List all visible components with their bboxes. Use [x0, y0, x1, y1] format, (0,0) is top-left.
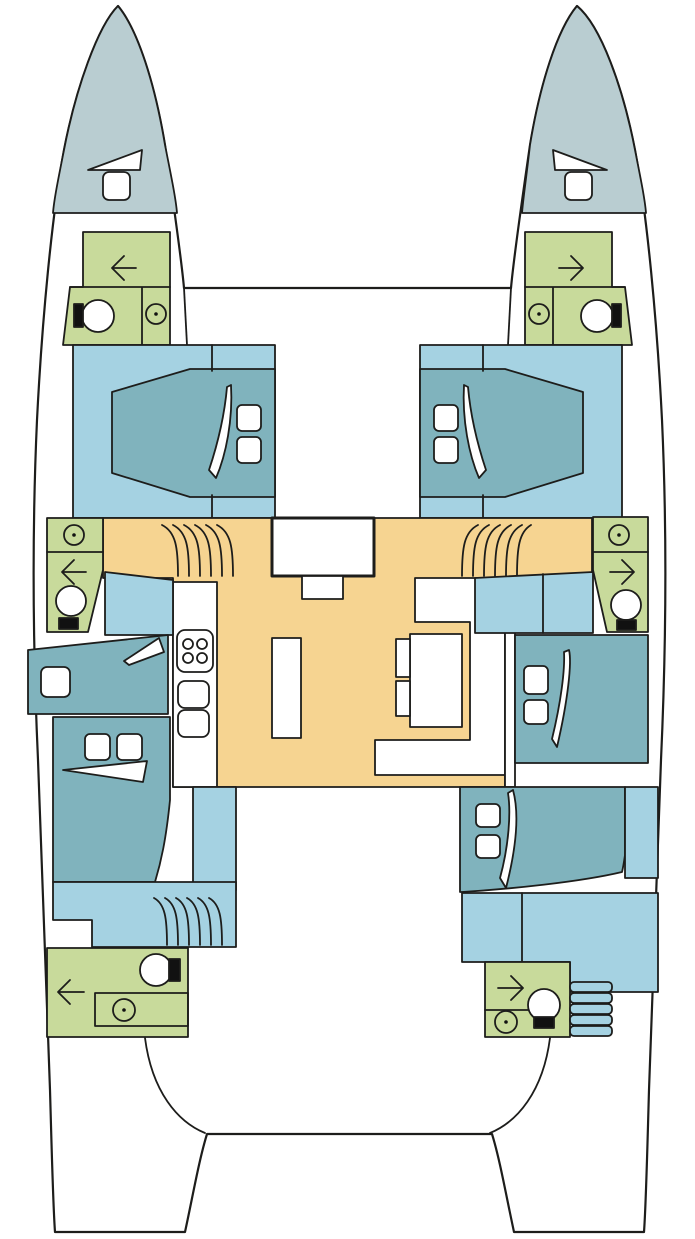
pillow-icon [434, 405, 458, 431]
steps-icon [570, 1026, 612, 1036]
toilet-icon [56, 586, 86, 616]
bed-icon [112, 369, 275, 497]
toilet-tank [169, 959, 180, 981]
deck-plan-canvas [0, 0, 695, 1239]
washbasin-drain [617, 533, 621, 537]
washbasin-drain [122, 1008, 126, 1012]
washbasin-drain [72, 533, 76, 537]
sink-icon [178, 710, 209, 737]
pillow-icon [524, 700, 548, 724]
landing-starboard [475, 572, 593, 633]
pillow-icon [476, 835, 500, 858]
pillow-icon [85, 734, 110, 760]
bed-icon [515, 635, 648, 763]
corridor-port [193, 787, 236, 890]
dinette-table [410, 634, 462, 727]
toilet-tank [74, 304, 83, 327]
washbasin-drain [537, 312, 541, 316]
pillow-icon [237, 405, 261, 431]
pillow-icon [237, 437, 261, 463]
bed-icon [420, 369, 583, 497]
stool [396, 681, 410, 716]
toilet-icon [140, 954, 172, 986]
toilet-icon [581, 300, 613, 332]
stove-icon [177, 630, 213, 672]
bow-lockers [53, 6, 646, 213]
washbasin-drain [504, 1020, 508, 1024]
pillow-icon [476, 804, 500, 827]
island-counter [272, 638, 301, 738]
deck-hatch-icon [565, 172, 592, 200]
pillow-icon [434, 437, 458, 463]
toilet-tank [617, 620, 636, 630]
deck-hatch-icon [103, 172, 130, 200]
toilet-tank [59, 618, 78, 629]
entry-step [302, 576, 343, 599]
toilet-icon [611, 590, 641, 620]
steps-icon [570, 1015, 612, 1025]
steps-icon [570, 982, 612, 992]
pillow-icon [524, 666, 548, 694]
side-passage-starboard [625, 787, 658, 878]
toilet-icon [82, 300, 114, 332]
pillow-icon [41, 667, 70, 697]
bed-icon [53, 717, 170, 882]
toilet-tank [612, 304, 621, 327]
catamaran-deck-plan [0, 0, 695, 1239]
steps-icon [570, 1004, 612, 1014]
toilet-tank [534, 1017, 554, 1028]
washbasin-drain [154, 312, 158, 316]
stool [396, 639, 410, 677]
steps-icon [570, 993, 612, 1003]
sink-icon [178, 681, 209, 708]
salon-entry-door [272, 518, 374, 576]
starboard-aft-steps [570, 982, 612, 1036]
pillow-icon [117, 734, 142, 760]
landing-port [105, 572, 173, 635]
